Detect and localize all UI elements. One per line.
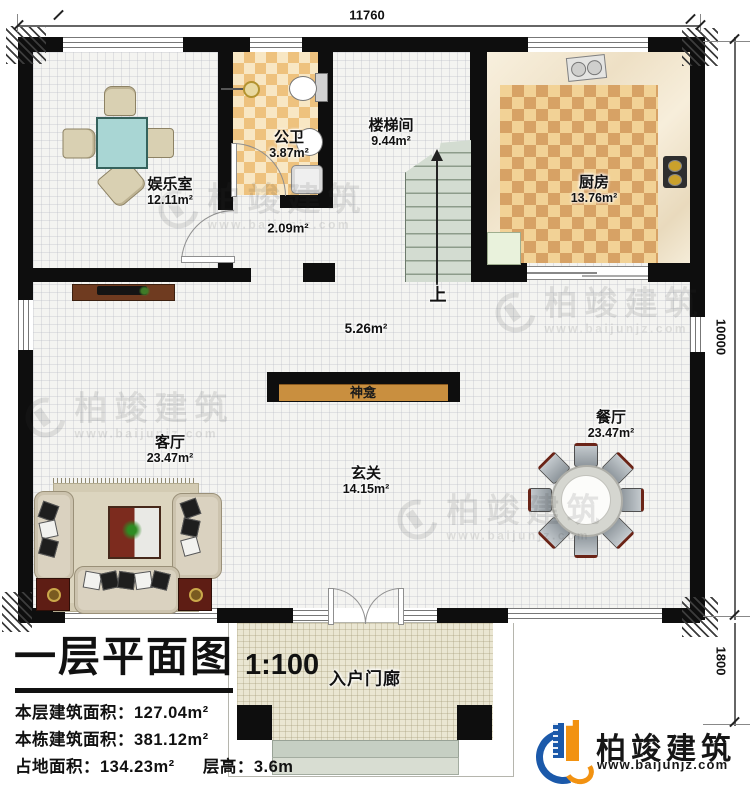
window-right-dining bbox=[690, 317, 705, 352]
wall-bottom bbox=[217, 608, 293, 623]
stairs-direction-line bbox=[436, 160, 438, 285]
wall-top bbox=[302, 37, 528, 52]
window-bottom-dining bbox=[508, 608, 662, 623]
entry-door-left-leaf bbox=[328, 588, 334, 625]
kitchen-cabinet bbox=[487, 232, 521, 265]
corner-marker-top-right bbox=[682, 28, 718, 66]
wall-kitchen-bottom bbox=[648, 263, 690, 282]
light-fixture bbox=[243, 81, 260, 98]
shrine-label: 神龛 bbox=[350, 382, 376, 402]
room-label-entertainment: 娱乐室 12.11m² bbox=[147, 176, 193, 208]
dimension-line-porch bbox=[734, 623, 736, 726]
dimension-porch-value: 1800 bbox=[714, 647, 729, 676]
corner-marker-bottom-left bbox=[2, 592, 32, 632]
stairs-arrow-head bbox=[431, 149, 443, 161]
dimension-side-value: 10000 bbox=[714, 319, 729, 355]
shower-tray bbox=[291, 165, 323, 194]
cabinet-plant bbox=[139, 286, 150, 296]
stove bbox=[663, 156, 687, 188]
wall-bottom bbox=[437, 608, 508, 623]
entertainment-door-leaf bbox=[181, 256, 235, 263]
game-chair bbox=[104, 86, 136, 116]
room-label-living: 客厅 23.47m² bbox=[147, 434, 194, 466]
plan-scale: 1:100 bbox=[245, 649, 319, 682]
dining-chair bbox=[620, 488, 644, 512]
entry-sidelight-right bbox=[400, 610, 437, 621]
plan-title: 一层平面图 bbox=[14, 634, 234, 680]
stairs-up-label: 上 bbox=[430, 281, 447, 306]
sofa-pillow bbox=[134, 571, 153, 590]
window-top-entertainment bbox=[63, 37, 183, 52]
wall-kitchen-bottom bbox=[487, 263, 527, 282]
porch-pillar bbox=[237, 705, 272, 740]
wall-right bbox=[690, 37, 705, 317]
area-label-open: 5.26m² bbox=[345, 321, 388, 337]
dining-chair bbox=[574, 534, 598, 558]
game-chair bbox=[63, 129, 96, 159]
room-label-bathroom: 公卫 3.87m² bbox=[269, 129, 309, 161]
window-left-living bbox=[18, 300, 33, 350]
coffee-table-plant bbox=[122, 520, 142, 540]
dimension-line-right bbox=[734, 37, 736, 620]
entry-door-right-leaf bbox=[398, 588, 404, 625]
room-label-dining: 餐厅 23.47m² bbox=[588, 409, 635, 441]
section-tick bbox=[53, 10, 64, 21]
wall-entertainment-bottom bbox=[33, 268, 251, 282]
sofa-pillow bbox=[180, 517, 200, 537]
kitchen-sink bbox=[566, 54, 607, 82]
porch-step-2 bbox=[272, 757, 459, 775]
window-top-kitchen bbox=[528, 37, 648, 52]
brand-logo-icon bbox=[536, 720, 590, 778]
corner-marker-top-left bbox=[6, 26, 46, 64]
wall-kitchen-left bbox=[470, 37, 487, 282]
room-label-foyer: 玄关 14.15m² bbox=[343, 465, 390, 497]
game-table bbox=[96, 117, 148, 169]
dimension-top-value: 11760 bbox=[349, 8, 384, 23]
stat-building-area: 本栋建筑面积：381.12m² bbox=[15, 726, 209, 750]
dining-table-top bbox=[561, 475, 611, 525]
room-label-stairwell: 楼梯间 9.44m² bbox=[368, 117, 413, 149]
dimension-ext bbox=[703, 41, 750, 42]
porch-pillar bbox=[457, 705, 492, 740]
stat-floor-area: 本层建筑面积：127.04m² bbox=[15, 699, 209, 723]
brand-website: www.baijunjz.com bbox=[597, 757, 728, 772]
wall-top bbox=[183, 37, 250, 52]
area-label-hallway: 2.09m² bbox=[267, 222, 308, 237]
stat-land-area: 占地面积：134.23m² 层高：3.6m bbox=[15, 753, 293, 777]
toilet-bowl bbox=[289, 76, 317, 101]
light-fixture-line bbox=[221, 88, 245, 90]
dining-chair bbox=[574, 443, 598, 467]
kitchen-sliding-door bbox=[527, 266, 648, 280]
corner-marker-bottom-right bbox=[682, 597, 718, 637]
entry-sidelight-left bbox=[293, 610, 330, 621]
title-underline bbox=[15, 688, 233, 693]
wall-right bbox=[690, 352, 705, 620]
bathroom-door-leaf bbox=[231, 143, 237, 197]
room-label-porch: 入户门廊 bbox=[329, 665, 401, 690]
floor-mat bbox=[36, 578, 70, 611]
dimension-line-top bbox=[18, 25, 700, 27]
room-label-kitchen: 厨房 13.76m² bbox=[571, 174, 618, 206]
wall-stairwell-left-stub bbox=[303, 263, 335, 282]
section-tick bbox=[685, 14, 696, 25]
floor-plan-canvas: 柏竣建筑 www.baijunjz.com 柏竣建筑 www.baijunjz.… bbox=[0, 0, 750, 789]
window-top-bathroom bbox=[250, 37, 302, 52]
dining-chair bbox=[528, 488, 552, 512]
wall-left bbox=[18, 350, 33, 620]
floor-mat bbox=[178, 578, 212, 611]
dimension-ext bbox=[703, 616, 750, 617]
wall-left bbox=[18, 37, 33, 300]
